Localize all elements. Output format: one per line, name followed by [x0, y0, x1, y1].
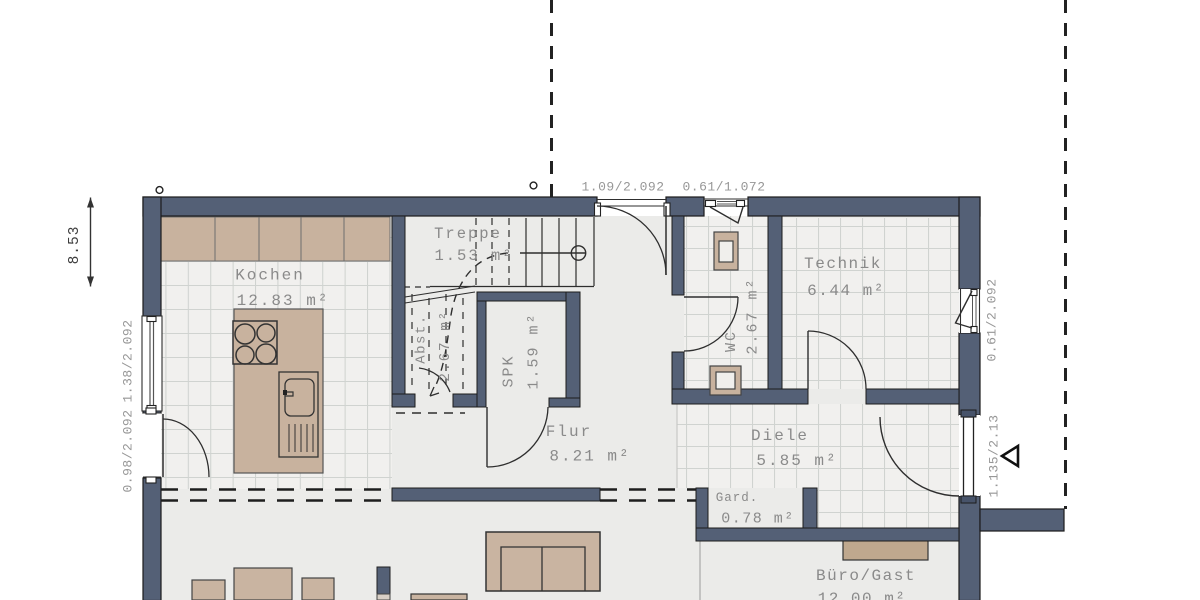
svg-text:0.98/2.092: 0.98/2.092: [121, 409, 136, 492]
svg-text:2.67 m²: 2.67 m²: [438, 310, 454, 381]
svg-text:0.78 m²: 0.78 m²: [721, 511, 795, 528]
svg-text:Kochen: Kochen: [235, 267, 305, 285]
svg-text:Flur: Flur: [546, 423, 592, 441]
svg-text:12.00 m²: 12.00 m²: [818, 590, 907, 600]
svg-text:0.61/2.092: 0.61/2.092: [985, 278, 1000, 361]
svg-text:6.44 m²: 6.44 m²: [807, 282, 885, 300]
svg-text:5.85 m²: 5.85 m²: [756, 452, 837, 470]
svg-text:0.61/1.072: 0.61/1.072: [682, 180, 765, 195]
svg-text:1.135/2.13: 1.135/2.13: [987, 414, 1002, 497]
svg-text:8.21 m²: 8.21 m²: [549, 448, 630, 466]
svg-text:8.53: 8.53: [67, 226, 83, 265]
svg-text:1.38/2.092: 1.38/2.092: [121, 319, 136, 402]
svg-text:SPK: SPK: [501, 354, 518, 387]
svg-text:1.53 m²: 1.53 m²: [434, 247, 513, 265]
svg-text:WC: WC: [723, 330, 740, 352]
svg-text:Treppe: Treppe: [434, 225, 502, 243]
svg-text:Büro/Gast: Büro/Gast: [816, 567, 916, 585]
svg-text:Diele: Diele: [751, 427, 809, 445]
svg-text:12.83 m²: 12.83 m²: [237, 292, 330, 310]
svg-text:1.59 m²: 1.59 m²: [526, 312, 543, 389]
svg-text:Abst.: Abst.: [414, 314, 430, 364]
svg-text:2.67 m²: 2.67 m²: [745, 277, 762, 354]
svg-text:1.09/2.092: 1.09/2.092: [581, 180, 664, 195]
svg-text:Gard.: Gard.: [716, 491, 759, 505]
svg-text:Technik: Technik: [804, 255, 882, 273]
